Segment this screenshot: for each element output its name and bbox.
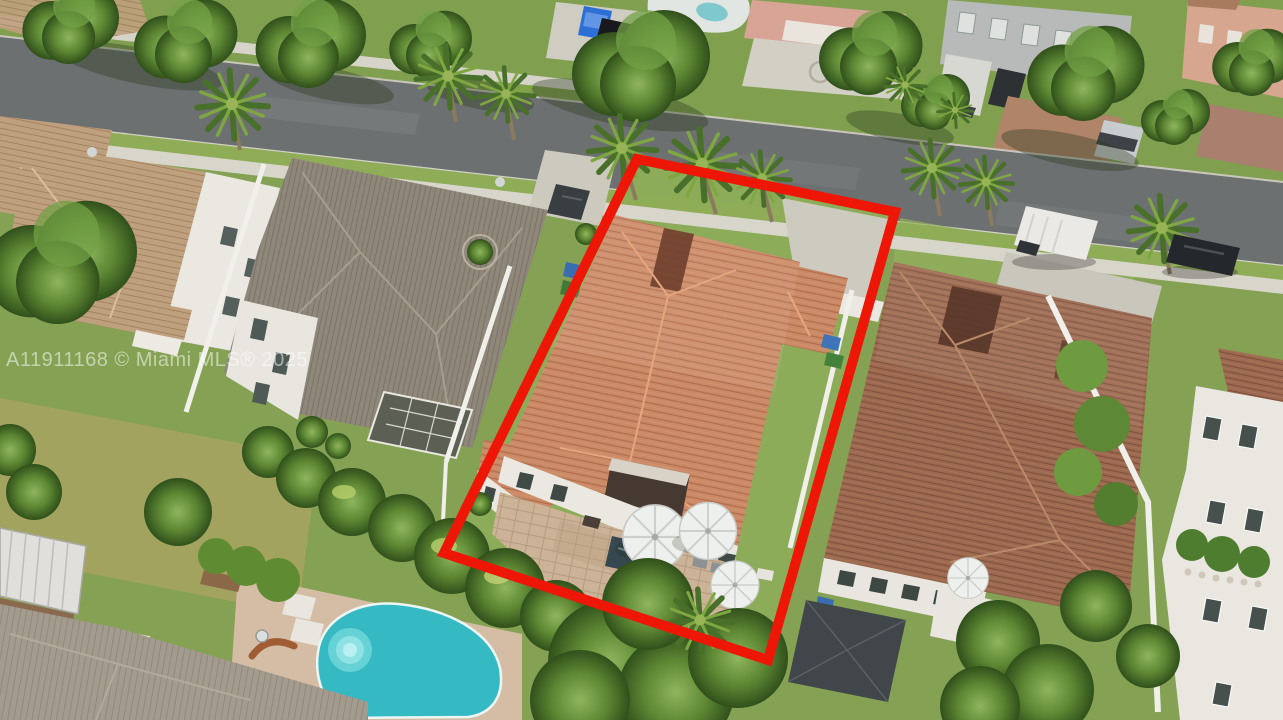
palm-tree — [885, 65, 926, 105]
large-bush — [144, 478, 212, 546]
satellite-dish-icon — [87, 147, 97, 157]
hedge — [1204, 536, 1240, 572]
palm-tree — [903, 140, 962, 197]
patio-umbrella — [948, 558, 989, 599]
satellite-dish-icon — [495, 177, 505, 187]
aerial-photo-canvas: A11911168 © Miami MLS® 2025 — [0, 0, 1283, 720]
palm-tree — [960, 157, 1013, 208]
palm-tree — [938, 93, 973, 127]
pool-steps — [343, 643, 357, 657]
aerial-photo: A11911168 © Miami MLS® 2025 — [0, 0, 1283, 720]
shrub — [296, 416, 328, 448]
palm-tree — [589, 116, 657, 182]
satellite-dish-icon — [256, 630, 268, 642]
hedge — [1176, 529, 1208, 561]
mls-watermark: A11911168 © Miami MLS® 2025 — [6, 349, 308, 371]
bush — [6, 464, 62, 520]
hedge — [1238, 546, 1270, 578]
shrub — [325, 433, 351, 459]
patio-umbrella — [680, 503, 737, 560]
palm-tree — [197, 70, 268, 138]
palm-tree — [416, 45, 481, 108]
front-shrub — [467, 239, 493, 265]
hedge — [256, 558, 300, 602]
palm-tree — [478, 67, 534, 121]
